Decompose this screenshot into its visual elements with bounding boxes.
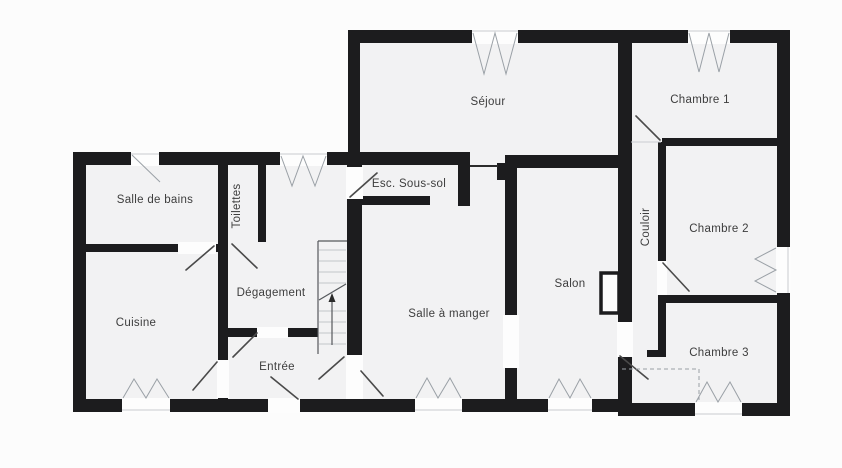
- wall-toilettes-right: [258, 164, 266, 242]
- room-label-degagement: Dégagement: [237, 287, 306, 299]
- wall-left-wing-left: [73, 152, 86, 412]
- room-label-salle-a-manger: Salle à manger: [408, 308, 490, 320]
- room-label-chambre-2: Chambre 2: [689, 223, 749, 235]
- room-label-toilettes: Toilettes: [231, 184, 243, 229]
- wall-manger-salon: [505, 163, 517, 412]
- opening-manger-salon: [503, 315, 519, 368]
- wall-chambre1-bottom: [662, 138, 777, 146]
- wall-esc-right: [458, 152, 470, 206]
- floor-plan-drawing: Salle de bains Toilettes Dégagement Cuis…: [0, 0, 842, 468]
- room-label-salle-de-bains: Salle de bains: [117, 194, 193, 206]
- room-label-couloir: Couloir: [640, 208, 652, 247]
- room-label-chambre-1: Chambre 1: [670, 94, 730, 106]
- floor-fills: [73, 30, 790, 416]
- floor-plan-canvas: Salle de bains Toilettes Dégagement Cuis…: [0, 0, 842, 468]
- wall-sejour-bottom: [360, 152, 470, 165]
- room-label-esc-sous-sol: Esc. Sous-sol: [372, 178, 446, 190]
- middle-section-floor: [348, 30, 632, 412]
- room-label-sejour: Séjour: [470, 96, 505, 108]
- room-label-cuisine: Cuisine: [116, 317, 156, 329]
- room-label-salon: Salon: [555, 278, 586, 290]
- room-label-chambre-3: Chambre 3: [689, 347, 749, 359]
- wall-salon-top: [505, 155, 632, 168]
- wall-manger-top-stub: [497, 163, 508, 180]
- wall-couloir-right: [658, 142, 666, 357]
- wall-right-wing-right: [777, 30, 790, 416]
- wall-sejour-left: [348, 30, 360, 164]
- room-label-entree: Entrée: [259, 361, 295, 373]
- chimney-block: [601, 273, 619, 313]
- wall-couloir-stub: [647, 350, 666, 357]
- wall-esc-bottom: [362, 196, 430, 205]
- wall-chambre2-chambre3: [666, 295, 777, 303]
